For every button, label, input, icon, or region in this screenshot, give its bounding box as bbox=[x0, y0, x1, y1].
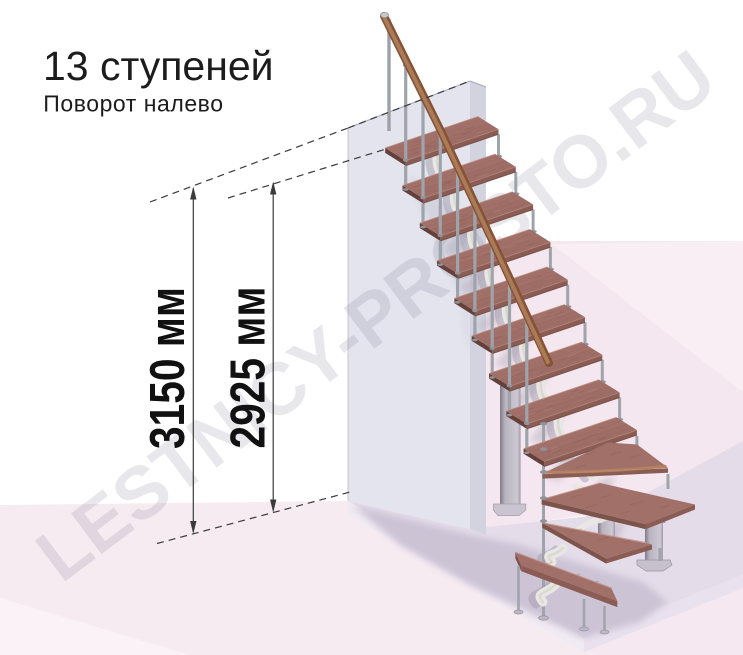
svg-text:Поворот налево: Поворот налево bbox=[43, 90, 223, 116]
svg-text:13 ступеней: 13 ступеней bbox=[43, 43, 274, 89]
svg-text:3150 мм: 3150 мм bbox=[141, 287, 195, 449]
svg-text:2925 мм: 2925 мм bbox=[222, 287, 276, 449]
